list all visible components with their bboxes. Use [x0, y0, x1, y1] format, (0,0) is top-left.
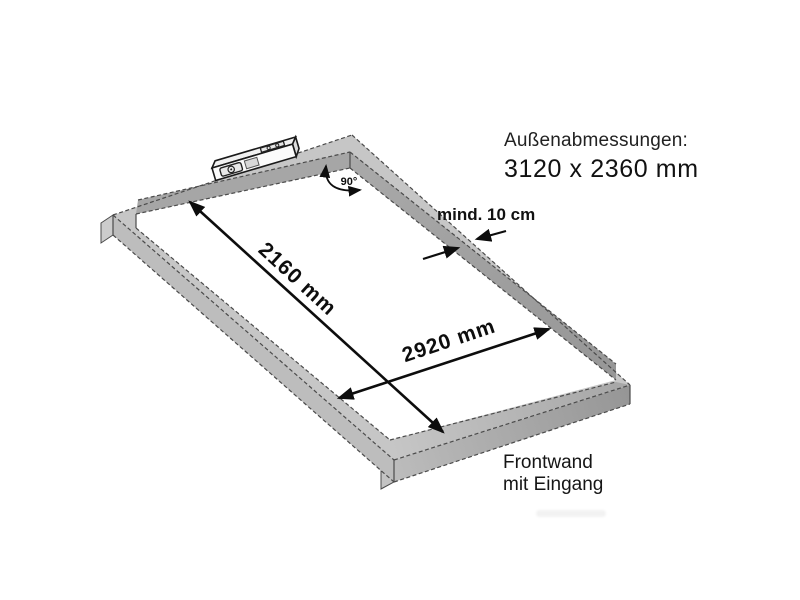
outer-dimensions-title: Außenabmessungen: [504, 130, 699, 152]
min-width-arrow-upper [477, 231, 506, 239]
frame-top-shading-right [390, 382, 630, 460]
min-width-arrow-lower [423, 248, 458, 259]
watermark-smudge [536, 510, 606, 517]
frame-inner-face-right [350, 152, 616, 380]
frame-corner-bevel-west [101, 215, 113, 243]
angle-label: 90° [341, 176, 358, 188]
dim-label-width: 2160 mm [254, 238, 341, 320]
front-wall-label-line2: mit Eingang [503, 474, 603, 496]
foundation-frame-diagram: 2160 mm 2920 mm 90° [0, 0, 800, 600]
front-wall-label-line1: Frontwand [503, 452, 603, 474]
outer-dimensions-value: 3120 x 2360 mm [504, 155, 699, 184]
min-rail-width-label: mind. 10 cm [437, 205, 535, 225]
outer-dimensions-block: Außenabmessungen: 3120 x 2360 mm [504, 130, 699, 184]
front-wall-label: Frontwand mit Eingang [503, 452, 603, 495]
dim-label-length: 2920 mm [399, 315, 498, 368]
screenshot-root: 2160 mm 2920 mm 90° Außenabmessungen: 31… [0, 0, 800, 600]
